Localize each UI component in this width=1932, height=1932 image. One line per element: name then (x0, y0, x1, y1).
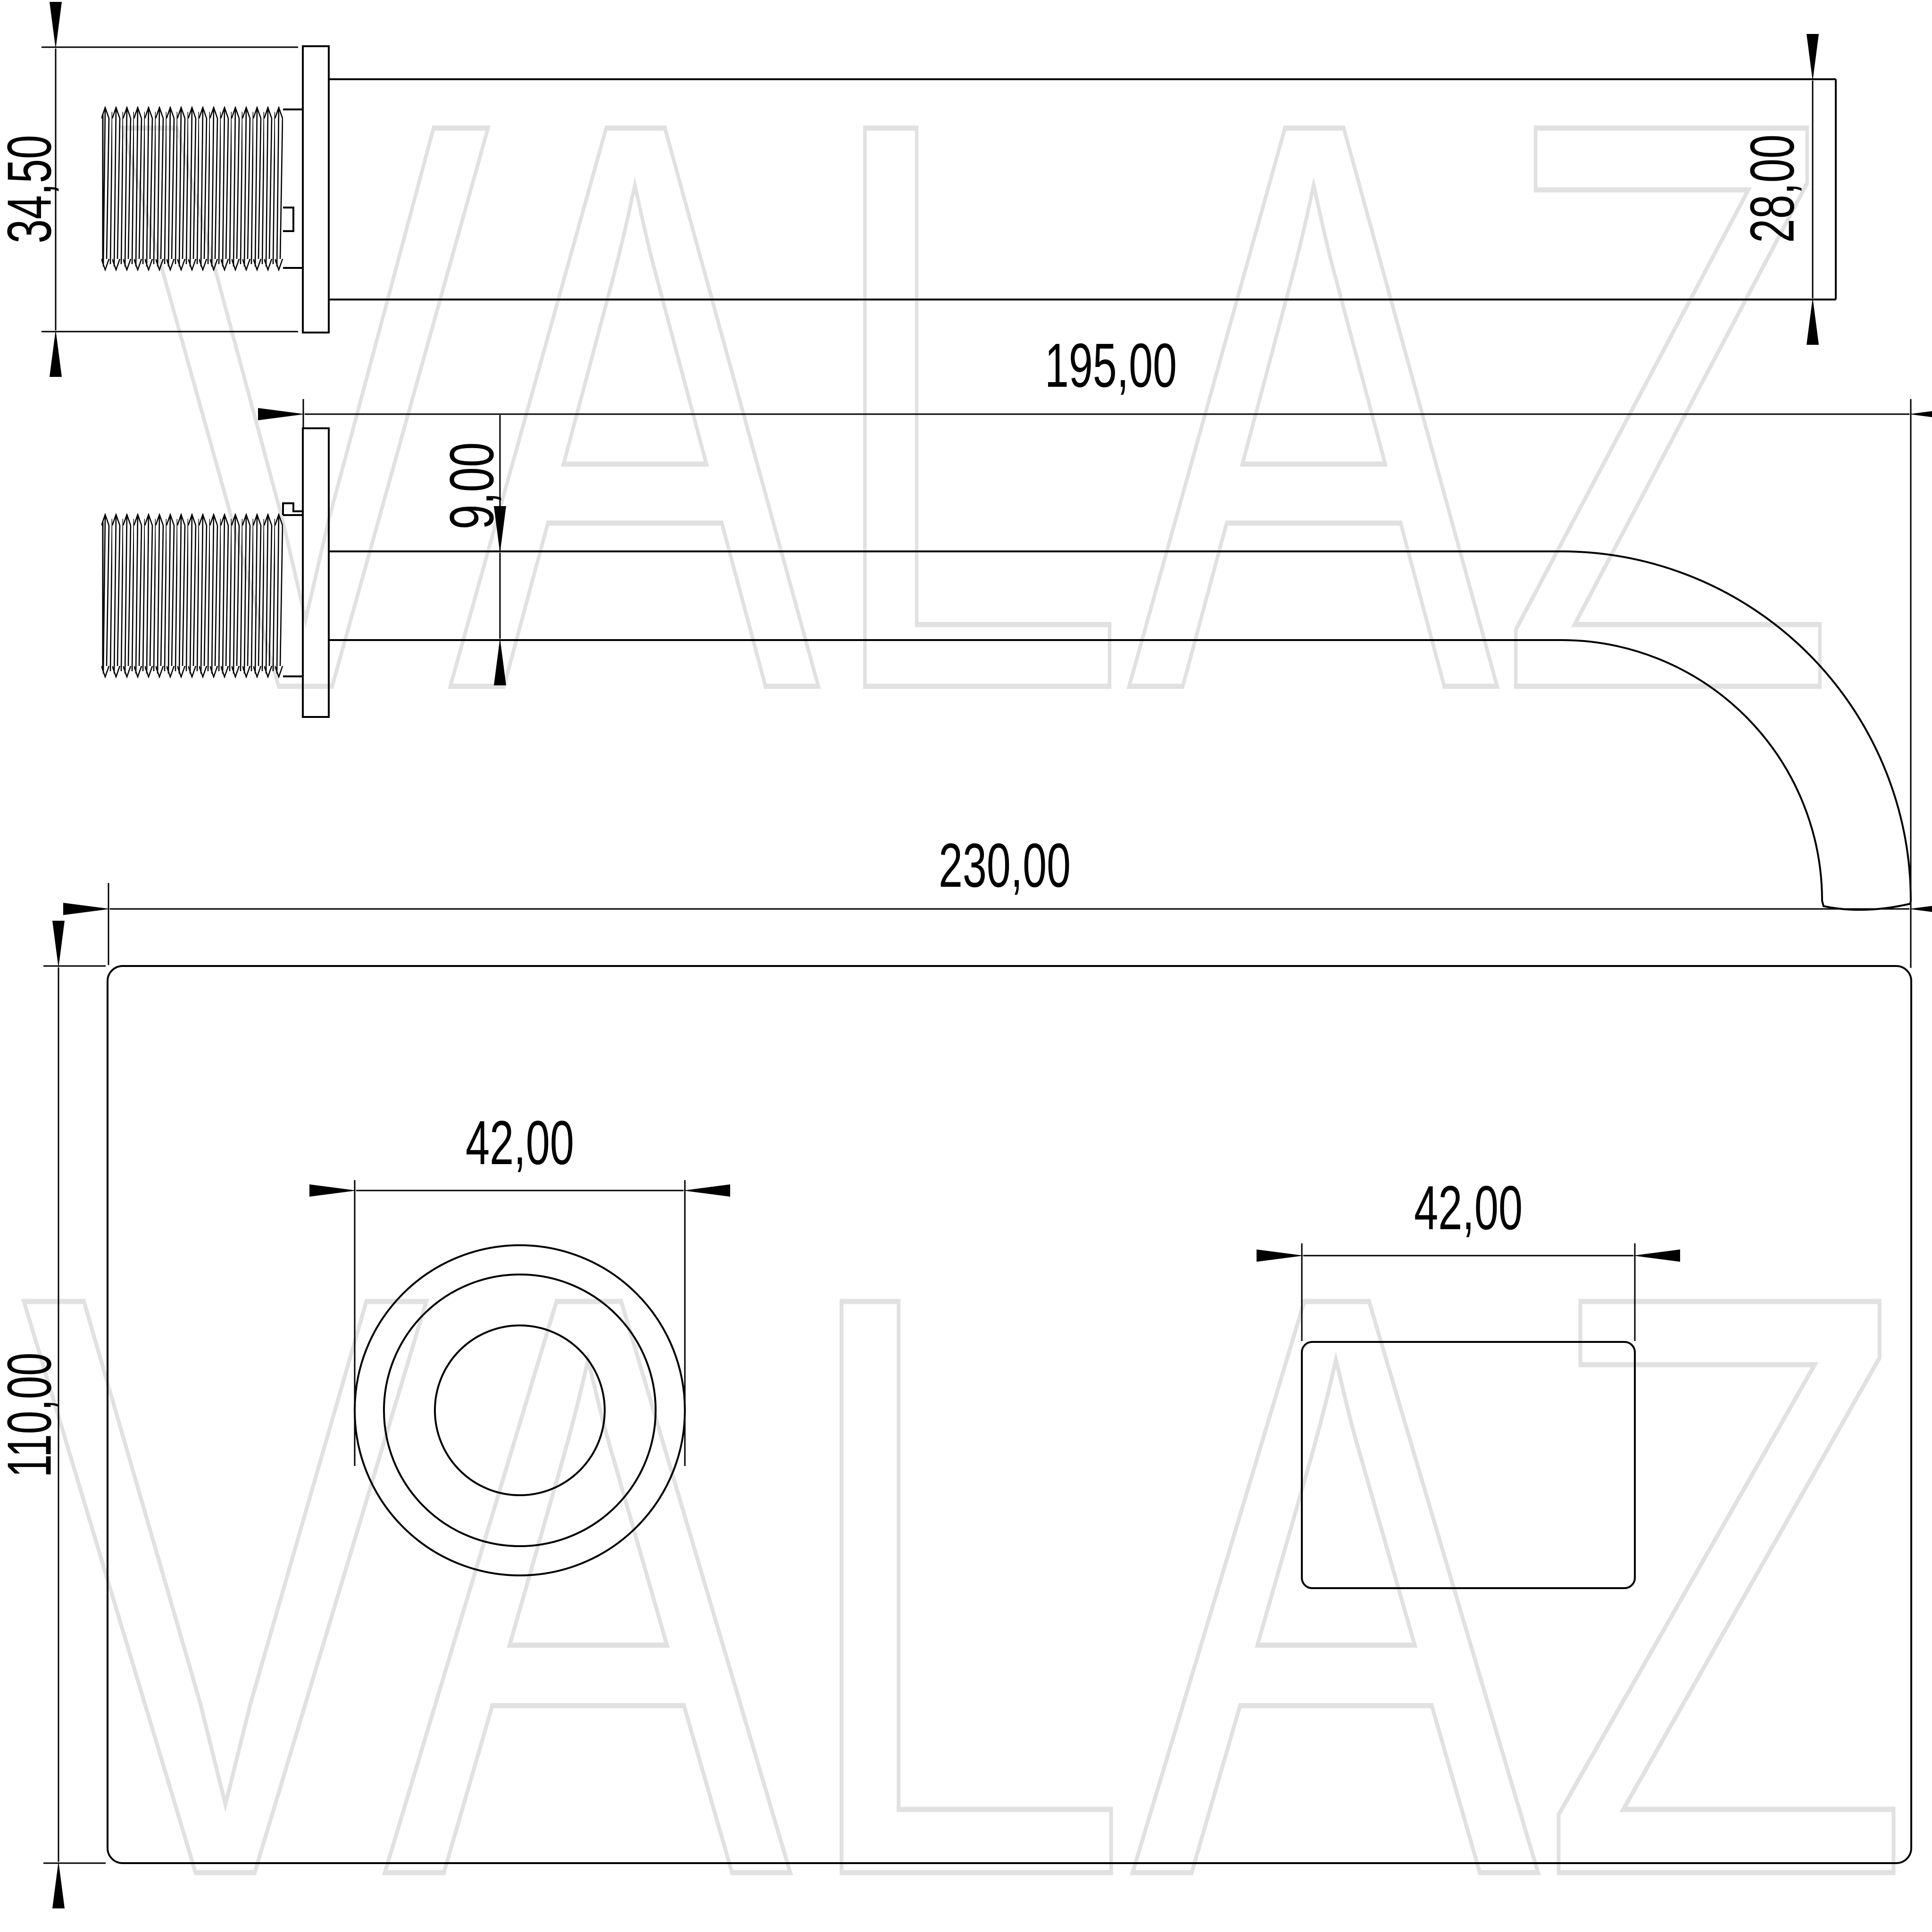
watermark-bottom: VALAZ (21, 1121, 1913, 1932)
dim-28-00-label: 28,00 (1738, 134, 1807, 243)
dim-230-00-label: 230,00 (939, 831, 1071, 900)
thread-side-view (101, 513, 283, 678)
dim-195-00-label: 195,00 (1045, 331, 1177, 400)
watermark-top-text: VALAZ (120, 0, 1837, 858)
watermark-top: VALAZ (120, 0, 1837, 858)
watermark-bottom-text: VALAZ (21, 1121, 1913, 1932)
thread-top-view (101, 106, 283, 271)
dim-42-00-square-label: 42,00 (1414, 1173, 1523, 1242)
dim-34-50-label: 34,50 (0, 135, 64, 243)
drawing-sheet: VALAZ VALAZ 34,50 28,00 (0, 0, 1932, 1932)
dim-9-00-label: 9,00 (437, 442, 507, 530)
dim-110-00-label: 110,00 (0, 1353, 64, 1478)
faucet-technical-drawing: VALAZ VALAZ 34,50 28,00 (0, 0, 1932, 1932)
dim-42-00-circle-label: 42,00 (466, 1108, 574, 1177)
